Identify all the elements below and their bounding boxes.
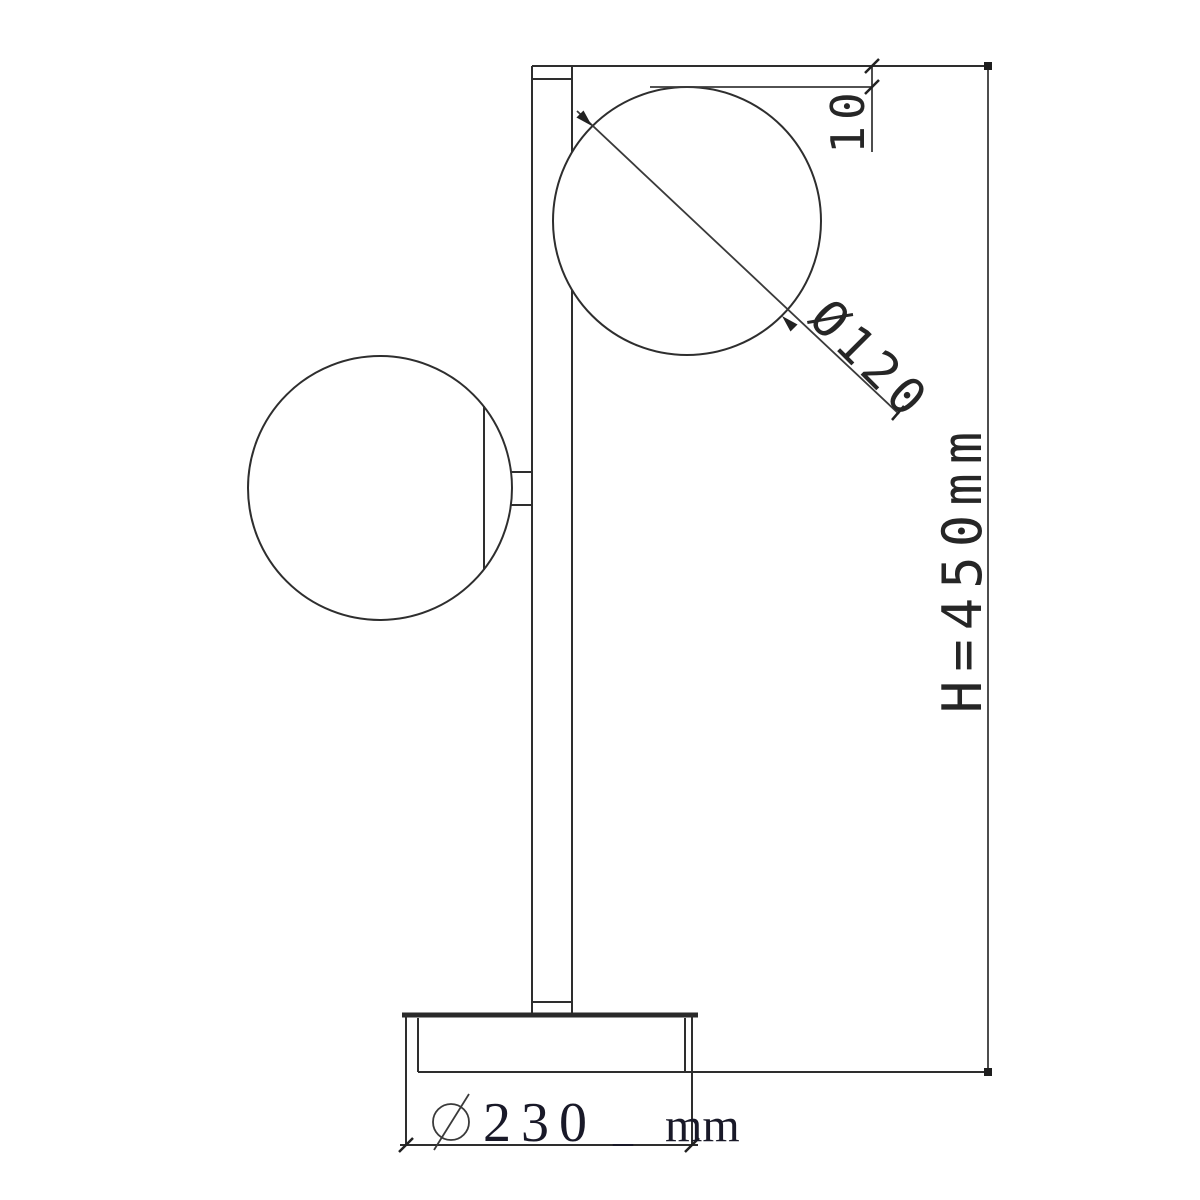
base-diameter-value: 230 [483, 1092, 597, 1154]
diameter-symbol-slash [434, 1094, 469, 1150]
height-dimension-label: H=450mm [931, 423, 994, 714]
base-diameter-mark: _ [612, 1105, 634, 1150]
globe-diameter-label: Ø120 [798, 288, 941, 431]
height-dim-bottom-endpoint [984, 1068, 992, 1076]
top-offset-label: 10 [821, 86, 875, 153]
technical-drawing-canvas: H=450mm 10 Ø120 230 _ mm [0, 0, 1200, 1200]
technical-drawing-page: H=450mm 10 Ø120 230 _ mm [0, 0, 1200, 1200]
diameter-symbol-icon [433, 1094, 469, 1150]
height-dim-top-endpoint [984, 62, 992, 70]
lower-globe [248, 356, 533, 620]
lower-globe-outline [248, 356, 512, 620]
base-diameter-unit: mm [665, 1099, 740, 1152]
height-dimension: H=450mm [931, 62, 994, 1076]
